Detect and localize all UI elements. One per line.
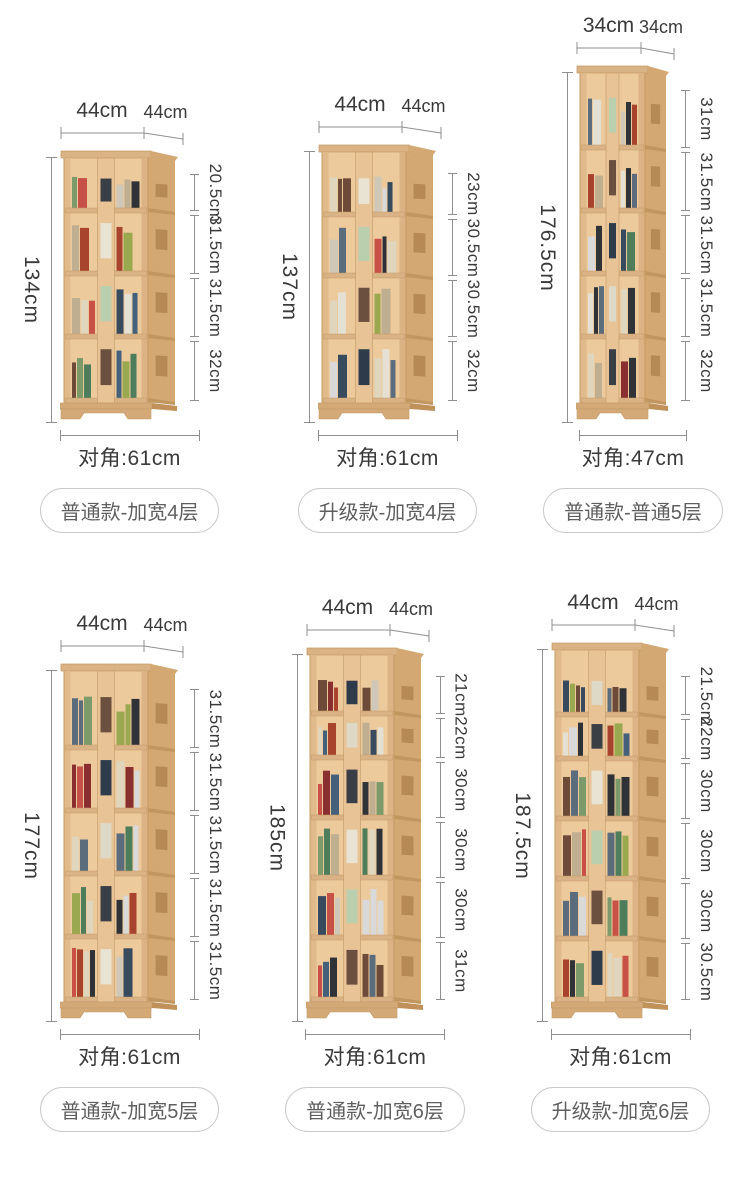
section-dim-label: 31.5cm xyxy=(696,152,716,211)
section-dim-line xyxy=(194,689,195,748)
section-dim-label: 30cm xyxy=(451,828,471,872)
diagonal-dimension-line xyxy=(305,1034,445,1035)
section-dim-line xyxy=(685,341,686,401)
depth-width-label: 44cm xyxy=(142,102,189,123)
front-width-label: 44cm xyxy=(306,596,390,620)
section-dim-label: 31.5cm xyxy=(205,815,225,874)
height-dimension: 187.5cm xyxy=(509,649,551,1022)
section-dim-label: 31.5cm xyxy=(205,752,225,811)
section-dim-label: 31cm xyxy=(451,949,471,993)
bookshelf-art xyxy=(551,641,672,1022)
bookshelf-art xyxy=(318,143,439,423)
front-width-label: 34cm xyxy=(576,14,641,38)
section-dim: 30.5cm xyxy=(443,278,499,339)
height-dimension: 177cm xyxy=(18,670,60,1022)
section-dim-label: 30cm xyxy=(696,829,716,873)
diagonal-dimension: 对角:47cm xyxy=(579,435,687,472)
depth-width-label: 34cm xyxy=(639,17,680,38)
section-dim: 31.5cm xyxy=(185,939,241,1002)
section-dim: 20.5cm xyxy=(185,172,241,213)
section-dim-line xyxy=(452,173,453,215)
section-dim: 22cm xyxy=(676,717,732,761)
depth-width-label: 44cm xyxy=(142,615,189,636)
variant-badge: 普通款-加宽5层 xyxy=(40,1087,220,1132)
width-dimensions: 44cm 44cm xyxy=(306,596,433,646)
section-dim-line xyxy=(685,152,686,211)
height-label: 176.5cm xyxy=(535,204,559,292)
width-dimension-lines xyxy=(576,40,678,62)
section-dimensions: 20.5cm31.5cm31.5cm32cm xyxy=(185,172,241,403)
width-dimension-lines-wrap xyxy=(576,40,678,67)
section-dim-label: 30cm xyxy=(451,768,471,812)
row-1: 44cm 44cm 134cm 20.5cm31.5cm31.5cm32cm 对… xyxy=(18,14,732,533)
section-dim: 31.5cm xyxy=(185,813,241,876)
diagonal-label: 对角:61cm xyxy=(336,442,439,472)
section-dim-line xyxy=(452,219,453,276)
section-dim: 31.5cm xyxy=(185,876,241,939)
height-dimension-line xyxy=(51,157,52,423)
section-dim-line xyxy=(440,882,441,938)
height-dimension-line xyxy=(309,151,310,423)
section-dim-line xyxy=(194,278,195,337)
section-dim-label: 30.5cm xyxy=(696,942,716,1001)
bookshelf-illustration xyxy=(60,662,181,1022)
bookshelf-figure: 44cm 44cm 134cm 20.5cm31.5cm31.5cm32cm 对… xyxy=(18,99,241,533)
variant-badge: 升级款-加宽4层 xyxy=(298,488,478,533)
section-dim-line xyxy=(194,878,195,937)
height-label: 137cm xyxy=(277,253,301,321)
front-width-label: 44cm xyxy=(60,99,144,123)
front-width-label: 44cm xyxy=(60,612,144,636)
section-dim-line xyxy=(685,719,686,759)
height-dimension: 137cm xyxy=(276,151,318,423)
height-label: 185cm xyxy=(265,804,289,872)
bookshelf-illustration xyxy=(551,641,672,1022)
section-dim-line xyxy=(440,718,441,758)
section-dim-label: 31cm xyxy=(696,97,716,141)
section-dim-label: 31.5cm xyxy=(696,215,716,274)
section-dim: 21cm xyxy=(431,674,487,716)
section-dim-line xyxy=(685,823,686,879)
width-dimension-lines-wrap xyxy=(318,119,445,146)
diagonal-dimension: 对角:61cm xyxy=(60,435,200,472)
section-dim-line xyxy=(440,676,441,714)
diagonal-dimension: 对角:61cm xyxy=(318,435,458,472)
section-dim: 32cm xyxy=(443,339,499,403)
diagonal-dimension: 对角:61cm xyxy=(60,1034,200,1071)
bookshelf-art xyxy=(576,64,672,423)
section-dim: 30cm xyxy=(431,880,487,940)
section-dim-label: 30.5cm xyxy=(463,218,483,277)
section-dim: 31cm xyxy=(676,88,732,150)
height-dimension-line xyxy=(542,649,543,1022)
section-dim: 31cm xyxy=(431,940,487,1002)
section-dim: 31.5cm xyxy=(185,213,241,276)
height-label: 187.5cm xyxy=(510,792,534,880)
section-dim: 31.5cm xyxy=(676,150,732,213)
section-dim-label: 22cm xyxy=(451,716,471,760)
section-dim-label: 21cm xyxy=(451,673,471,717)
depth-width-label: 44cm xyxy=(388,599,435,620)
diagonal-label: 对角:61cm xyxy=(569,1041,672,1071)
width-dimension-lines xyxy=(318,119,445,141)
section-dim: 31.5cm xyxy=(185,687,241,750)
bookshelf-illustration xyxy=(60,149,181,423)
section-dim-label: 31.5cm xyxy=(205,941,225,1000)
figure-middle: 187.5cm 21.5cm22cm30cm30cm30cm30.5cm xyxy=(509,641,732,1022)
depth-width-label: 44cm xyxy=(400,96,447,117)
figure-middle: 137cm 23cm30.5cm30.5cm32cm xyxy=(276,143,499,423)
section-dim-label: 30.5cm xyxy=(463,279,483,338)
section-dim-label: 31.5cm xyxy=(205,278,225,337)
section-dim: 30cm xyxy=(676,881,732,941)
section-dim-label: 31.5cm xyxy=(205,689,225,748)
section-dim: 30cm xyxy=(431,820,487,880)
section-dim-line xyxy=(685,763,686,819)
diagonal-dimension-line xyxy=(60,435,200,436)
section-dim-line xyxy=(440,762,441,818)
section-dim-line xyxy=(685,90,686,148)
depth-width-label: 44cm xyxy=(633,594,680,615)
section-dim-line xyxy=(194,815,195,874)
section-dim: 21.5cm xyxy=(676,674,732,717)
section-dim: 30cm xyxy=(431,760,487,820)
bookshelf-illustration xyxy=(306,646,427,1022)
section-dim-label: 22cm xyxy=(696,717,716,761)
variant-badge: 普通款-加宽6层 xyxy=(285,1087,465,1132)
width-dimension-lines-wrap xyxy=(60,638,187,665)
section-dim-line xyxy=(194,215,195,274)
section-dim-label: 30cm xyxy=(451,888,471,932)
section-dim-label: 32cm xyxy=(463,349,483,393)
section-dim-line xyxy=(194,174,195,211)
section-dim: 32cm xyxy=(676,339,732,403)
diagonal-dimension-line xyxy=(60,1034,200,1035)
front-width-label: 44cm xyxy=(318,93,402,117)
figure-middle: 134cm 20.5cm31.5cm31.5cm32cm xyxy=(18,149,241,423)
section-dim: 23cm xyxy=(443,171,499,217)
front-width-label: 44cm xyxy=(551,591,635,615)
bookshelf-art xyxy=(306,646,427,1022)
height-dimension-line xyxy=(567,72,568,423)
bookshelf-figure: 44cm 44cm 177cm 31.5cm31.5cm31.5cm31.5cm… xyxy=(18,612,241,1132)
height-dimension-line xyxy=(51,670,52,1022)
width-dimension-lines-wrap xyxy=(551,617,678,644)
width-dimension-lines xyxy=(60,125,187,147)
section-dim: 32cm xyxy=(185,339,241,403)
bookshelf-figure: 34cm 34cm 176.5cm 31cm31.5cm31.5cm31.5cm… xyxy=(534,14,732,533)
section-dim-line xyxy=(685,278,686,337)
section-dim-line xyxy=(452,341,453,401)
height-dimension: 134cm xyxy=(18,157,60,423)
width-dimension-lines xyxy=(306,622,433,644)
product-dimension-sheet: 44cm 44cm 134cm 20.5cm31.5cm31.5cm32cm 对… xyxy=(0,0,750,1132)
bookshelf-figure: 44cm 44cm 187.5cm 21.5cm22cm30cm30cm30cm… xyxy=(509,591,732,1132)
bookshelf-illustration xyxy=(318,143,439,423)
figure-middle: 177cm 31.5cm31.5cm31.5cm31.5cm31.5cm xyxy=(18,662,241,1022)
section-dim: 31.5cm xyxy=(676,276,732,339)
bookshelf-illustration xyxy=(576,64,672,423)
section-dim-line xyxy=(685,676,686,715)
bookshelf-figure: 44cm 44cm 137cm 23cm30.5cm30.5cm32cm 对角:… xyxy=(276,93,499,533)
width-dimension-lines-wrap xyxy=(60,125,187,152)
width-dimension-lines xyxy=(60,638,187,660)
section-dim: 30cm xyxy=(676,761,732,821)
variant-badge: 升级款-加宽6层 xyxy=(531,1087,711,1132)
height-label: 134cm xyxy=(19,256,43,324)
width-dimensions: 34cm 34cm xyxy=(576,14,678,64)
section-dim-label: 31.5cm xyxy=(205,215,225,274)
section-dim-line xyxy=(685,883,686,939)
section-dim-label: 23cm xyxy=(463,172,483,216)
width-dimension-lines-wrap xyxy=(306,622,433,649)
diagonal-dimension: 对角:61cm xyxy=(305,1034,445,1071)
diagonal-dimension-line xyxy=(579,435,687,436)
bookshelf-art xyxy=(60,662,181,1022)
width-dimensions: 44cm 44cm xyxy=(318,93,445,143)
section-dim-label: 31.5cm xyxy=(205,878,225,937)
row-2: 44cm 44cm 177cm 31.5cm31.5cm31.5cm31.5cm… xyxy=(18,591,732,1132)
figure-middle: 185cm 21cm22cm30cm30cm30cm31cm xyxy=(264,646,487,1022)
diagonal-dimension: 对角:61cm xyxy=(551,1034,691,1071)
bookshelf-art xyxy=(60,149,181,423)
variant-badge: 普通款-加宽4层 xyxy=(40,488,220,533)
section-dim-line xyxy=(440,942,441,1000)
section-dim: 31.5cm xyxy=(185,750,241,813)
width-dimensions: 44cm 44cm xyxy=(60,612,187,662)
section-dimensions: 31cm31.5cm31.5cm31.5cm32cm xyxy=(676,88,732,403)
width-dimensions: 44cm 44cm xyxy=(551,591,678,641)
height-dimension: 185cm xyxy=(264,654,306,1022)
figure-middle: 176.5cm 31cm31.5cm31.5cm31.5cm32cm xyxy=(534,64,732,423)
diagonal-label: 对角:61cm xyxy=(78,442,181,472)
diagonal-dimension-line xyxy=(551,1034,691,1035)
height-label: 177cm xyxy=(19,812,43,880)
section-dim: 31.5cm xyxy=(185,276,241,339)
width-dimensions: 44cm 44cm xyxy=(60,99,187,149)
section-dimensions: 31.5cm31.5cm31.5cm31.5cm31.5cm xyxy=(185,687,241,1002)
section-dim: 30.5cm xyxy=(443,217,499,278)
section-dim-line xyxy=(685,943,686,1000)
section-dim-label: 30cm xyxy=(696,769,716,813)
section-dim-line xyxy=(440,822,441,878)
section-dim-line xyxy=(685,215,686,274)
section-dim: 22cm xyxy=(431,716,487,760)
section-dim-line xyxy=(194,941,195,1000)
section-dim-line xyxy=(194,752,195,811)
diagonal-label: 对角:61cm xyxy=(78,1041,181,1071)
section-dim-label: 32cm xyxy=(696,349,716,393)
diagonal-label: 对角:61cm xyxy=(324,1041,427,1071)
height-dimension: 176.5cm xyxy=(534,72,576,423)
section-dim: 30.5cm xyxy=(676,941,732,1002)
section-dim-line xyxy=(452,280,453,337)
section-dimensions: 23cm30.5cm30.5cm32cm xyxy=(443,171,499,403)
diagonal-dimension-line xyxy=(318,435,458,436)
diagonal-label: 对角:47cm xyxy=(582,442,685,472)
section-dimensions: 21cm22cm30cm30cm30cm31cm xyxy=(431,674,487,1002)
section-dim-label: 32cm xyxy=(205,349,225,393)
section-dim: 31.5cm xyxy=(676,213,732,276)
section-dim: 30cm xyxy=(676,821,732,881)
width-dimension-lines xyxy=(551,617,678,639)
section-dimensions: 21.5cm22cm30cm30cm30cm30.5cm xyxy=(676,674,732,1002)
section-dim-label: 30cm xyxy=(696,889,716,933)
bookshelf-figure: 44cm 44cm 185cm 21cm22cm30cm30cm30cm31cm… xyxy=(264,596,487,1132)
section-dim-label: 31.5cm xyxy=(696,278,716,337)
height-dimension-line xyxy=(297,654,298,1022)
section-dim-line xyxy=(194,341,195,401)
variant-badge: 普通款-普通5层 xyxy=(543,488,723,533)
